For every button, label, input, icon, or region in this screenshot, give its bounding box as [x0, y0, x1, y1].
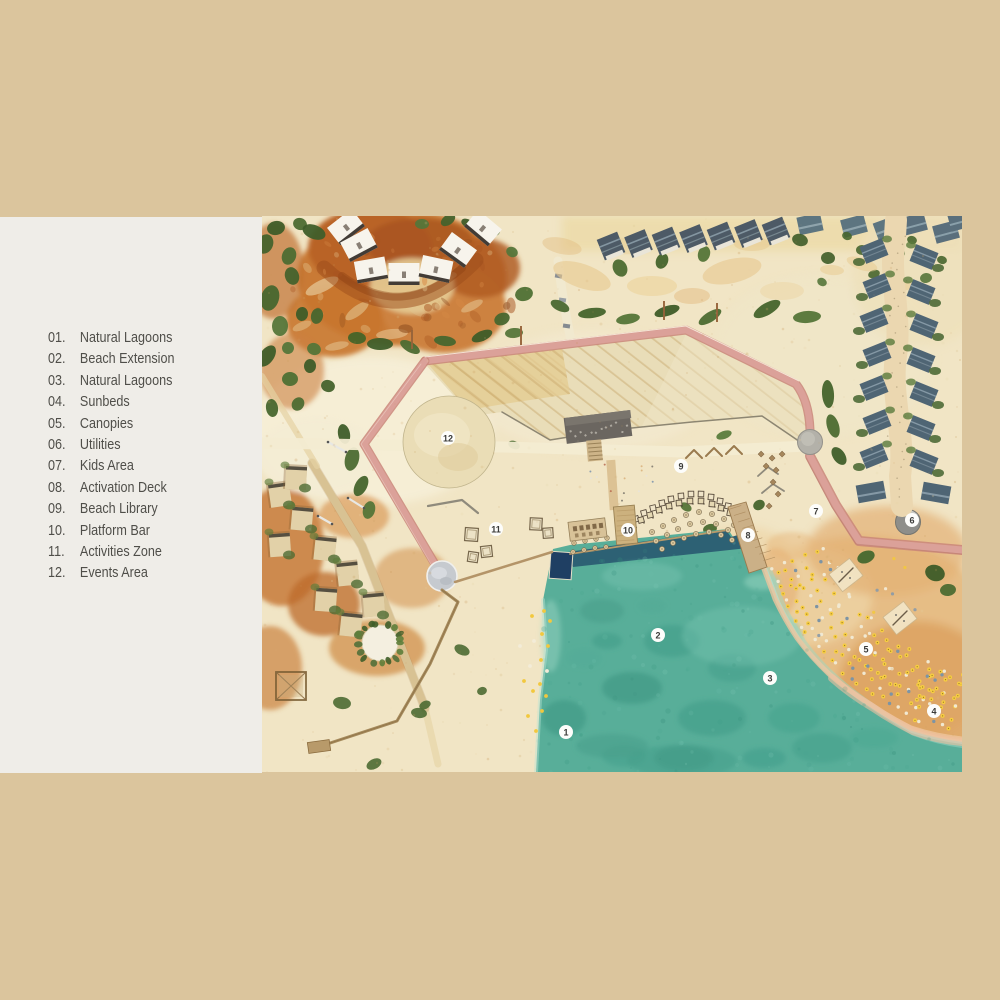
svg-text:11: 11: [491, 524, 501, 534]
svg-text:9: 9: [678, 461, 683, 471]
svg-text:8: 8: [745, 530, 750, 540]
svg-text:7: 7: [813, 506, 818, 516]
svg-text:3: 3: [767, 673, 772, 683]
svg-text:12: 12: [443, 433, 453, 443]
svg-text:1: 1: [563, 727, 568, 737]
svg-text:2: 2: [655, 630, 660, 640]
svg-text:6: 6: [909, 515, 914, 525]
svg-text:5: 5: [863, 644, 868, 654]
svg-text:10: 10: [623, 525, 633, 535]
svg-text:4: 4: [931, 706, 936, 716]
